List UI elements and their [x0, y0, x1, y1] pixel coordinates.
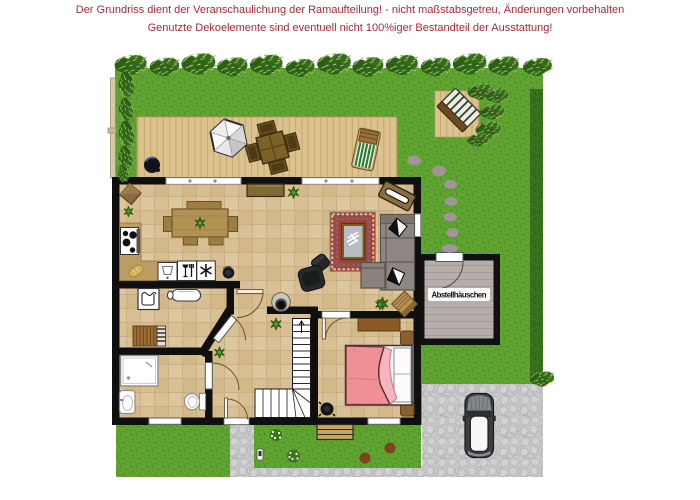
svg-text:Genutzte Dekoelemente sind eve: Genutzte Dekoelemente sind eventuell nic…: [148, 22, 553, 34]
svg-text:Der Grundriss dient der Verans: Der Grundriss dient der Veranschaulichun…: [76, 4, 624, 16]
svg-text:Abstellhäuschen: Abstellhäuschen: [432, 291, 487, 300]
